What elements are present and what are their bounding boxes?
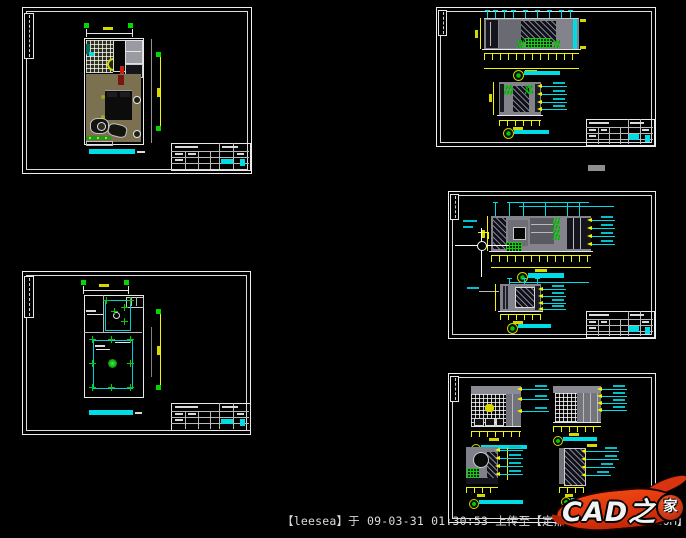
dimension-tick [128,286,129,294]
ceiling-light-symbol [89,384,96,391]
detail-marker [513,70,524,81]
reference-tick-cap [521,202,526,203]
leader-line [479,291,499,292]
logo-seal: 家 [656,493,685,522]
title-block-text [589,314,609,316]
leader-line [601,410,627,411]
reference-tick-cap [511,10,516,11]
plant [504,85,513,95]
annotation-text [613,392,625,394]
binding-strip [24,13,34,59]
reference-tick-cap [535,10,540,11]
reference-tick [495,10,496,18]
dimension-text [157,346,160,355]
dimension-text [535,269,547,272]
dimension-fragment [478,232,489,239]
crosshair-cursor [481,228,482,277]
ceiling-light-symbol [127,384,134,391]
detail-marker [503,128,514,139]
title-block-text [630,122,643,124]
leader-line [585,451,619,452]
leader-line [542,289,566,290]
annotation-text [95,345,105,347]
dimension-text [587,444,597,447]
shower-room [125,40,143,64]
wall-panel-hatch [502,286,509,309]
title-block-line [609,319,610,337]
leader-line [591,220,615,221]
door-recess [486,20,498,48]
binding-strip [438,10,447,36]
reference-tick [579,202,580,216]
reference-tick [549,10,550,18]
title-block-line [219,403,220,429]
leader-line [87,314,103,315]
reference-tick [487,10,488,18]
side-table [97,122,106,131]
dimension-string [466,487,498,493]
reference-tick-cap [565,202,570,203]
leader-line [499,450,523,451]
ceiling-light-symbol [108,336,115,343]
cabinet-grille [467,468,479,478]
annotation-text [552,285,564,287]
title-block-text [642,129,649,131]
leader-line [601,403,627,404]
title-block-line [198,151,199,169]
title-block-line [210,411,211,429]
dimension-text [475,30,478,38]
title-block-text [222,146,238,148]
reference-tick-cap [493,202,498,203]
title-block-text [589,327,596,329]
ceiling-light-symbol [121,318,128,325]
annotation-text [601,463,613,465]
reference-tick [495,202,496,216]
reference-tick-cap [485,10,490,11]
reference-tick [509,202,510,216]
annotation-text [553,82,565,84]
leader-arrow-icon [538,307,543,311]
dimension-tick [86,29,87,37]
ceiling-light-symbol [89,336,96,343]
crosshair-aperture [477,241,487,251]
dimension-line [491,267,591,268]
leader-arrow-icon [517,397,522,401]
floor-line [482,49,581,50]
sheet-ceiling-plan [22,271,251,435]
dimension-line-secondary [151,327,152,377]
shelf-line [531,224,553,225]
title-block-highlight [645,135,650,142]
dimension-line [495,284,496,311]
reference-tick-cap [523,10,528,11]
annotation-text [509,446,521,448]
dimension-text [157,88,160,97]
tile-grid [555,393,577,422]
title-block-text [175,153,183,155]
detail-marker [469,499,479,509]
leader-line [601,389,627,390]
mirror-detail [473,452,489,468]
plant [517,40,524,48]
base-line [471,426,521,427]
panel-joint [512,394,513,426]
detail-marker [507,323,518,334]
sofa-elevation [506,242,522,251]
ceiling-light-symbol [127,360,134,367]
ceiling-light-symbol [111,308,118,315]
title-block-text [188,413,196,415]
leader-arrow-icon [537,84,542,88]
plant-dot [89,137,91,139]
curtain [573,19,577,49]
leader-arrow-icon [587,226,592,230]
leader-line [591,244,615,245]
drawing-title-bar [89,149,135,154]
dimension-text [580,19,586,22]
reference-tick-cap [522,278,527,279]
title-block-line [620,319,621,337]
leader-arrow-icon [581,465,586,469]
sheet-floor-plan [22,7,252,174]
reference-tick-cap [493,10,498,11]
tv [513,227,526,240]
leader-line [585,459,619,460]
leader-arrow-icon [597,387,602,391]
dimension-line [160,56,161,130]
reference-tick [523,202,524,216]
leader-line [591,236,615,237]
title-block-highlight [629,134,639,140]
reference-tick [525,10,526,18]
ceiling-light-symbol [127,297,134,304]
nightstand-lamp [101,95,105,99]
leader-line [499,458,523,459]
wall-panel [530,218,554,244]
pillow [120,92,130,97]
dimension-node [84,23,89,28]
annotation-text [597,471,609,473]
dimension-string [491,255,591,262]
wall-line [151,39,152,143]
leader-line [585,467,615,468]
reference-tick [537,10,538,18]
annotation-text [613,385,625,387]
panel-joint [583,393,584,422]
leader-arrow-icon [517,387,522,391]
title-block-text [175,413,183,415]
leader-line [541,94,567,95]
pillow [107,92,117,97]
title-block-text [222,406,238,408]
leader-line [542,296,566,297]
leader-arrow-icon [587,218,592,222]
dimension-string [553,426,601,432]
dimension-line [160,313,161,388]
title-block-text [589,122,609,124]
leader-arrow-icon [537,107,542,111]
shower-divider [125,51,141,52]
basin-detail [485,404,494,412]
annotation-text [535,407,547,409]
annotation-text [553,105,565,107]
title-block-highlight [221,159,233,165]
reference-tick-cap [507,202,512,203]
floor-line [489,251,593,252]
leader-line [542,303,566,304]
title-block-text [237,153,245,155]
window [515,287,535,308]
reference-tick-cap [543,202,548,203]
leader-line [521,389,549,390]
title-block-line [210,151,211,169]
reference-tick-cap [559,10,564,11]
drawing-title-scale [135,412,142,414]
annotation-text [613,406,625,408]
title-block-text [188,153,196,155]
annotation-text [601,224,613,226]
drawing-title-scale [137,151,145,153]
dimension-node [156,309,161,314]
base-band [466,478,498,484]
title-block-text [601,321,608,323]
annotation-text [535,395,547,397]
title-block-highlight [221,419,233,425]
dimension-tick [132,29,133,37]
drawing-title-bar [479,500,523,504]
title-block-text [175,159,183,161]
title-block-line [219,143,220,169]
drawing-title-bar [518,324,551,328]
annotation-text [509,462,521,464]
drawing-title-bar [514,130,549,134]
panel-joint [590,393,591,422]
detail-band [553,386,601,393]
dimension-text [103,27,113,30]
leader-line [541,102,567,103]
title-block-line [628,119,629,144]
title-block-line [185,151,186,169]
plant [553,40,560,48]
leader-line [542,309,566,310]
drawing-title-bar [528,273,564,278]
reference-tick [504,10,505,18]
fixture [485,418,495,426]
reference-tick [561,10,562,18]
leader-arrow-icon [537,100,542,104]
dimension-node [124,280,129,285]
annotation-text [552,299,564,301]
annotation-text [553,98,565,100]
title-block-line [598,127,599,145]
annotation-text [605,455,617,457]
title-block-line [185,411,186,429]
leader-line [541,86,567,87]
dimension-node [156,385,161,390]
dimension-string [500,314,541,320]
dimension-text [489,438,499,441]
shelf-line [531,232,553,233]
annotation-text [535,385,547,387]
title-block-text [237,413,245,415]
dimension-tick [83,286,84,294]
annotation-text [509,470,521,472]
fixture [496,418,504,426]
binding-strip [450,194,459,220]
reference-tick-cap [502,10,507,11]
dimension-text [569,433,579,436]
ceiling-light-symbol [127,336,134,343]
ceiling-light-symbol [103,297,110,304]
dimension-node [128,23,133,28]
title-block-highlight [240,419,245,426]
wall-line [84,332,142,333]
title-block-text [630,314,643,316]
drawing-title-bar [563,437,597,441]
dimension-string [471,431,521,437]
leader-arrow-icon [495,464,500,468]
leader-arrow-icon [495,472,500,476]
detail-marker [553,436,563,446]
title-block-text [589,321,596,323]
door-leaf [490,22,491,46]
annotation-text [601,240,613,242]
dimension-line [83,290,129,291]
annotation-text [601,216,613,218]
floor-line [497,115,543,116]
title-block-text [642,321,649,323]
reference-tick [513,10,514,18]
sheet-elevations-a [436,7,656,147]
plant-dot [105,137,107,139]
leader-line [96,349,110,350]
fixture [474,418,484,426]
reference-tick-cap [547,10,552,11]
dimension-node [156,52,161,57]
leader-arrow-icon [537,92,542,96]
balcony-step [86,141,113,146]
dimension-line [484,68,579,69]
leader-line [601,396,627,397]
base-line [553,422,601,423]
leader-arrow-icon [597,394,602,398]
fixture-divider [136,297,137,306]
annotation-text [509,454,521,456]
title-block-highlight [645,327,650,334]
leader-arrow-icon [517,409,522,413]
sheet-elevations-b [448,191,656,339]
logo-text: CAD之 [562,490,656,529]
annotation-text [553,90,565,92]
dimension-node [156,126,161,131]
plot-mark [588,165,605,171]
reference-tick [545,202,546,216]
dimension-text [477,494,485,497]
leader-line [509,282,589,283]
title-block-text [589,135,596,137]
title-block-line [609,127,610,145]
title-block-highlight [629,326,639,332]
ceiling-light-symbol [89,360,96,367]
wardrobe-divider [580,218,581,249]
floor-line [498,311,543,312]
ceiling-light-symbol [121,304,128,311]
leader-arrow-icon [538,301,543,305]
binding-strip [450,376,459,402]
leader-line [521,399,549,400]
leader-arrow-icon [587,234,592,238]
leader-arrow-icon [581,449,586,453]
reference-tick-cap [535,278,540,279]
dimension-node [81,280,86,285]
wall-sconce [133,96,141,104]
wardrobe-divider [573,218,574,249]
title-block-text [175,419,183,421]
leader-line [499,466,523,467]
plant [553,218,560,240]
annotation-text [86,310,96,312]
annotation-text [467,287,479,289]
leader-arrow-icon [587,242,592,246]
annotation-text [605,447,617,449]
annotation-text [601,232,613,234]
ceiling-lamp [108,359,117,368]
leader-arrow-icon [597,401,602,405]
title-block-line [598,319,599,337]
title-block-line [198,411,199,429]
reference-tick [567,202,568,216]
annotation-text [613,399,625,401]
dimension-text [580,46,586,49]
title-block-text [175,406,198,408]
drawing-title-bar [89,410,133,415]
annotation-text [552,292,564,294]
leader-line [541,109,567,110]
leader-line [499,474,523,475]
plant [525,85,533,94]
dimension-text [489,94,492,102]
wall-sconce [133,130,141,138]
leader-arrow-icon [538,287,543,291]
dimension-line [86,33,133,34]
annotation-text [552,305,564,307]
leader-line [521,411,549,412]
dimension-line [493,82,494,115]
cad-canvas[interactable]: 【leesea】于 09-03-31 01:30:53 上传至【定鼎网:WWW.… [0,0,686,538]
title-block-text [175,146,198,148]
leader-arrow-icon [581,457,586,461]
ceiling-light-symbol [108,384,115,391]
cad-zhijia-logo: CAD之 家 [555,476,686,538]
binding-strip [24,276,34,318]
dimension-line [507,448,508,480]
reference-tick [570,10,571,18]
title-block-line [628,311,629,336]
title-block-text [589,129,596,131]
reference-tick-cap [568,10,573,11]
dimension-string [499,120,541,126]
title-block-text [601,129,608,131]
detail-band [471,386,521,394]
tv-cabinet [118,75,124,85]
dimension-string [484,53,579,60]
plant-dot [97,137,99,139]
title-block-line [620,127,621,145]
reference-tick-cap [507,278,512,279]
dimension-line [480,18,481,49]
drawing-title-bar [524,71,560,75]
